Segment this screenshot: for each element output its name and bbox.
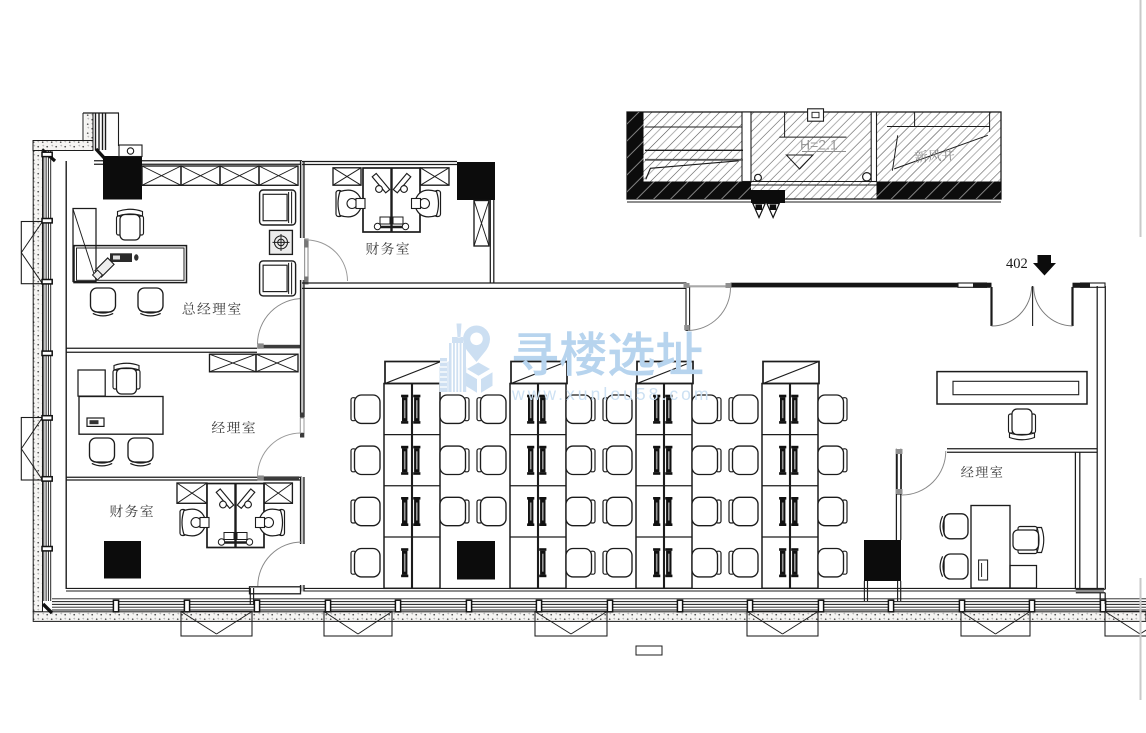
svg-text:www.xunlou58.com: www.xunlou58.com <box>511 384 712 404</box>
svg-text:402: 402 <box>1006 256 1028 272</box>
svg-text:H=2.1: H=2.1 <box>800 137 838 153</box>
